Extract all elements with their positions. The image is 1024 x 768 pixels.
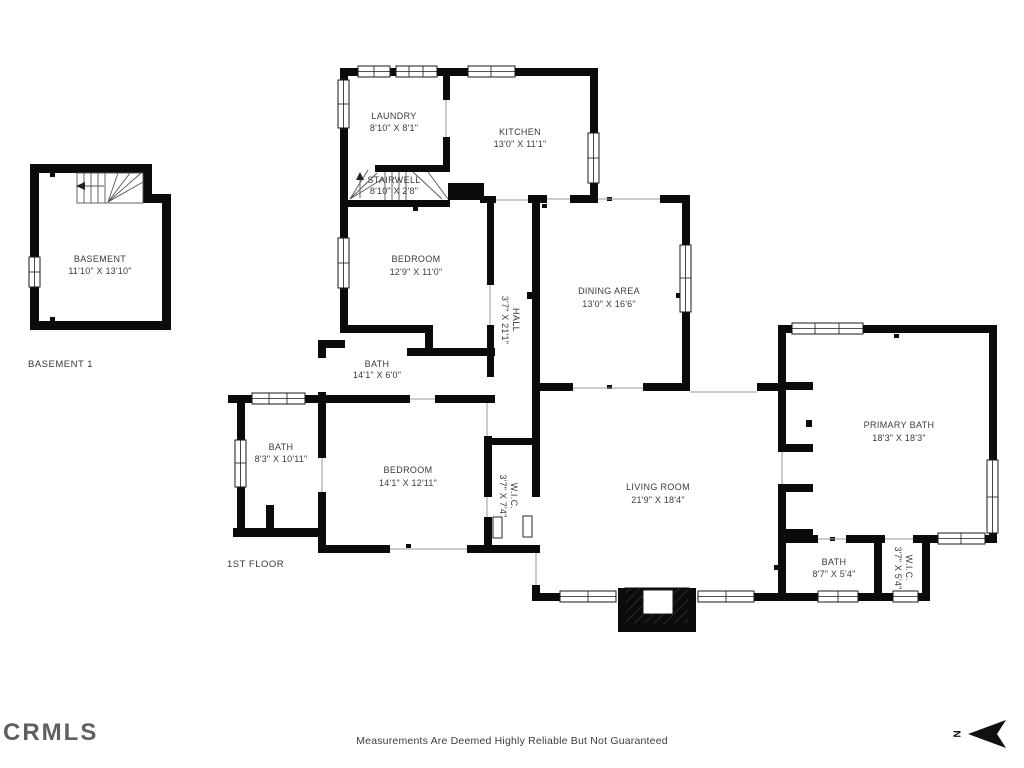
- room-label-wic2: W.I.C.: [904, 555, 914, 582]
- room-label-bath1: BATH: [365, 359, 390, 369]
- room-label-laundry: LAUNDRY: [371, 111, 416, 121]
- room-label-kitchen: KITCHEN: [499, 127, 541, 137]
- room-dims-kitchen: 13'0" X 11'1": [494, 139, 547, 149]
- room-label-primary-bath: PRIMARY BATH: [864, 420, 935, 430]
- basement-window: [29, 257, 40, 287]
- room-label-bath3: BATH: [822, 557, 847, 567]
- disclaimer-text: Measurements Are Deemed Highly Reliable …: [0, 735, 1024, 747]
- room-label-dining: DINING AREA: [578, 286, 640, 296]
- room-dims-bath2: 8'3" X 10'11": [255, 454, 308, 464]
- room-label-living: LIVING ROOM: [626, 482, 690, 492]
- room-dims-laundry: 8'10" X 8'1": [370, 123, 418, 133]
- basement-plan: BASEMENT 11'10" X 13'10" BASEMENT 1: [28, 164, 171, 370]
- opening-lines: [322, 100, 913, 585]
- floor-label-basement: BASEMENT 1: [28, 359, 93, 370]
- room-dims-bedroom2: 14'1" X 12'11": [379, 478, 437, 488]
- room-dims-primary-bath: 18'3" X 18'3": [872, 433, 925, 443]
- basement-walls: [30, 164, 171, 330]
- first-floor-walls: [228, 68, 997, 601]
- room-dims-hall: 3'7" X 21'1": [500, 296, 510, 344]
- room-label-bedroom1: BEDROOM: [392, 254, 441, 264]
- room-dims-wic2: 3'7" X 5'4": [893, 546, 903, 589]
- wic1-fixtures: [493, 516, 532, 538]
- room-dims-living: 21'9" X 18'4": [631, 495, 684, 505]
- stairs-direction-arrow: [356, 172, 364, 180]
- fireplace: [618, 588, 696, 632]
- first-floor-plan: LAUNDRY 8'10" X 8'1" KITCHEN 13'0" X 11'…: [227, 66, 998, 632]
- room-dims-bath3: 8'7" X 5'4": [812, 569, 855, 579]
- room-dims-dining: 13'0" X 16'6": [582, 299, 635, 309]
- room-label-bedroom2: BEDROOM: [384, 465, 433, 475]
- first-floor-windows: [235, 66, 998, 602]
- basement-stairs: [76, 173, 143, 203]
- room-label-basement: BASEMENT: [74, 254, 126, 264]
- floor-label-first: 1ST FLOOR: [227, 559, 284, 570]
- room-dims-bedroom1: 12'9" X 11'0": [390, 267, 443, 277]
- room-label-wic1: W.I.C.: [509, 483, 519, 510]
- floorplan-page: BASEMENT 11'10" X 13'10" BASEMENT 1: [0, 0, 1024, 768]
- room-label-stairwell: STAIRWELL: [367, 175, 420, 185]
- room-dims-wic1: 3'7" X 7'4": [498, 474, 508, 517]
- room-dims-bath1: 14'1" X 6'0": [353, 370, 401, 380]
- room-label-bath2: BATH: [269, 442, 294, 452]
- room-dims-stairwell: 8'10" X 2'8": [370, 186, 418, 196]
- floorplan-drawing: BASEMENT 11'10" X 13'10" BASEMENT 1: [0, 0, 1024, 768]
- room-dims-basement: 11'10" X 13'10": [68, 266, 131, 276]
- room-label-hall: HALL: [511, 308, 521, 332]
